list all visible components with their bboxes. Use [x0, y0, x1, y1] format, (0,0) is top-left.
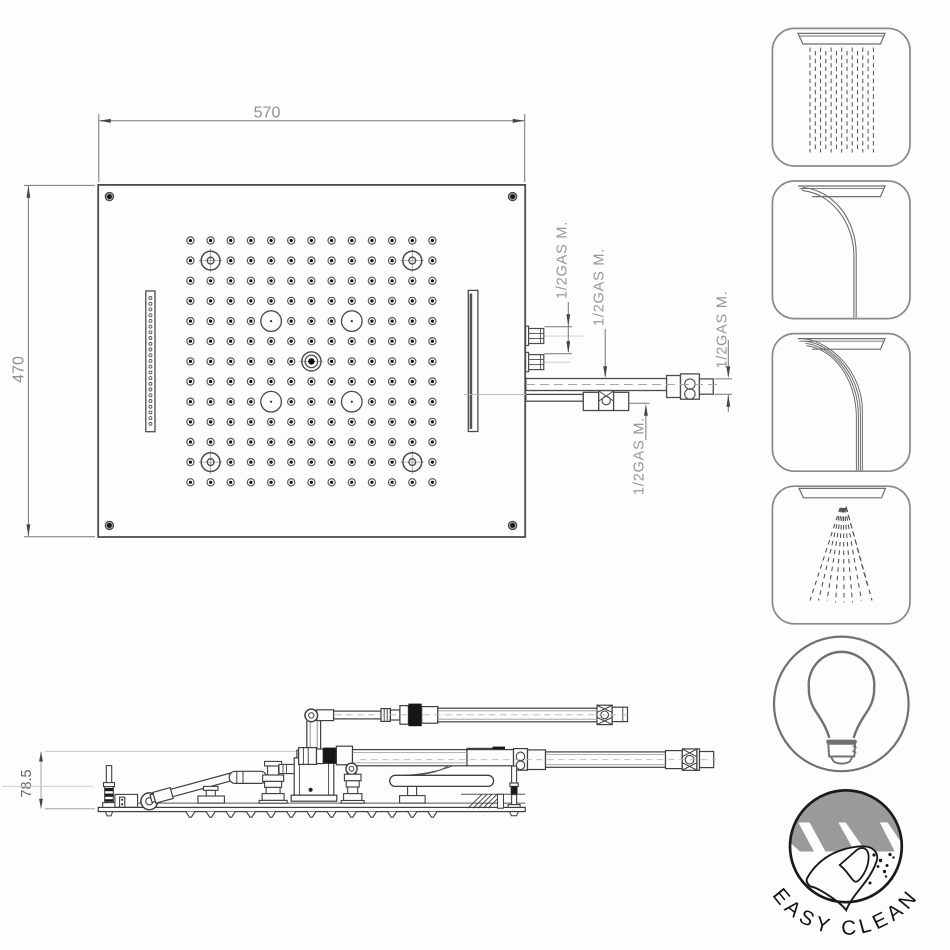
svg-text:1/2GAS M.: 1/2GAS M.	[592, 248, 608, 326]
svg-text:1/2GAS M.: 1/2GAS M.	[632, 417, 648, 495]
svg-text:570: 570	[254, 105, 281, 122]
svg-text:470: 470	[11, 356, 28, 383]
svg-text:1/2GAS M.: 1/2GAS M.	[555, 221, 571, 299]
svg-text:78.5: 78.5	[19, 769, 35, 797]
